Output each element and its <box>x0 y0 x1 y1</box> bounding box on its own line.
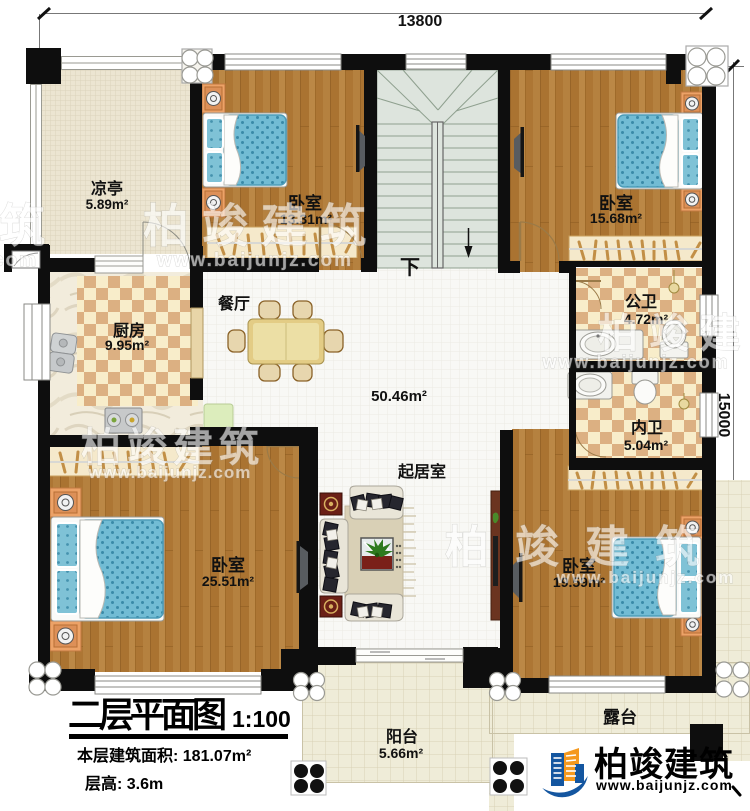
svg-text:1:100: 1:100 <box>232 706 291 732</box>
svg-text:www.baijunjz.com: www.baijunjz.com <box>556 568 736 587</box>
svg-text:卧室: 卧室 <box>211 555 245 575</box>
svg-text:二层平面图: 二层平面图 <box>68 696 225 735</box>
svg-text:柏竣建筑: 柏竣建筑 <box>445 523 725 572</box>
svg-text:阳台: 阳台 <box>386 727 418 746</box>
svg-text:www.baijunjz.com: www.baijunjz.com <box>88 463 252 482</box>
svg-text:层高: 3.6m: 层高: 3.6m <box>85 774 163 793</box>
svg-text:柏竣建筑: 柏竣建筑 <box>143 200 379 252</box>
svg-text:公卫: 公卫 <box>625 293 657 311</box>
svg-text:13800: 13800 <box>398 13 443 30</box>
svg-text:www.baijunjz.com: www.baijunjz.com <box>595 777 733 793</box>
svg-text:起居室: 起居室 <box>397 462 446 481</box>
svg-text:柏竣建筑: 柏竣建筑 <box>0 200 58 252</box>
svg-text:15.68m²: 15.68m² <box>590 210 642 226</box>
svg-text:内卫: 内卫 <box>631 418 663 437</box>
svg-text:露台: 露台 <box>603 707 637 727</box>
svg-text:9.95m²: 9.95m² <box>105 337 150 353</box>
svg-text:www.baijunjz.com: www.baijunjz.com <box>156 250 353 271</box>
svg-text:本层建筑面积: 181.07m²: 本层建筑面积: 181.07m² <box>77 746 251 765</box>
svg-text:柏竣建筑: 柏竣建筑 <box>598 312 750 356</box>
svg-text:25.51m²: 25.51m² <box>202 573 254 589</box>
svg-text:www.baijunjz.com: www.baijunjz.com <box>0 250 38 271</box>
svg-text:凉亭: 凉亭 <box>91 179 123 198</box>
svg-text:5.66m²: 5.66m² <box>379 745 424 761</box>
svg-text:50.46m²: 50.46m² <box>371 388 427 405</box>
svg-text:下: 下 <box>400 257 420 279</box>
svg-text:5.89m²: 5.89m² <box>86 197 129 212</box>
svg-text:餐厅: 餐厅 <box>217 294 250 313</box>
svg-text:www.baijunjz.com: www.baijunjz.com <box>541 352 729 372</box>
svg-text:5.04m²: 5.04m² <box>624 437 669 453</box>
